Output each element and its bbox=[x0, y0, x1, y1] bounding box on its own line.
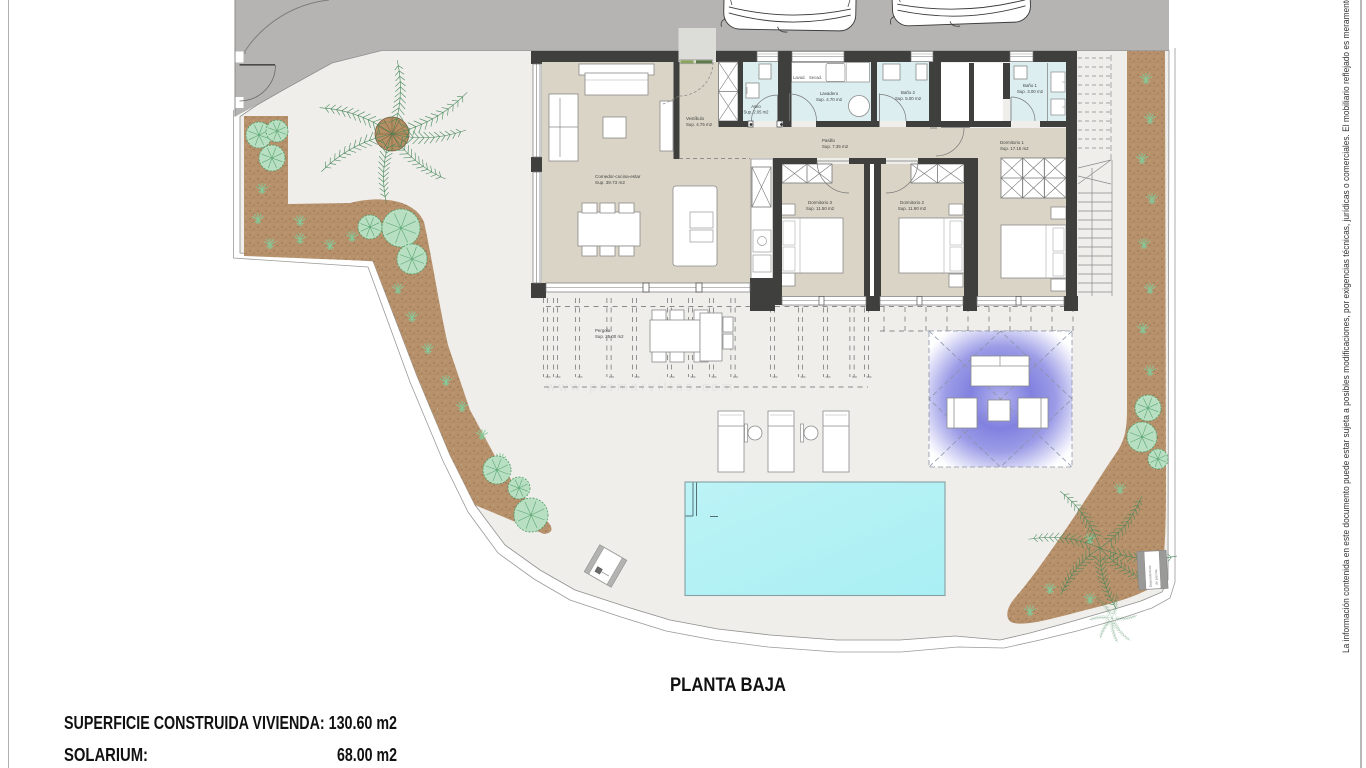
svg-text:Sup. 39.73 m2: Sup. 39.73 m2 bbox=[595, 180, 625, 185]
svg-text:Dormitorio 2: Dormitorio 2 bbox=[900, 200, 924, 205]
svg-text:www.promarvillas.com: www.promarvillas.com bbox=[545, 379, 735, 394]
svg-text:Baño 1: Baño 1 bbox=[1023, 83, 1037, 88]
svg-text:Dormitorio 3: Dormitorio 3 bbox=[808, 200, 832, 205]
svg-text:Aseo: Aseo bbox=[751, 104, 761, 109]
svg-text:PLANTA BAJA: PLANTA BAJA bbox=[670, 674, 786, 696]
svg-text:SUPERFICIE CONSTRUIDA VIVIENDA: SUPERFICIE CONSTRUIDA VIVIENDA: 130.60 m… bbox=[64, 713, 397, 733]
svg-text:Sup. 5.00 m2: Sup. 5.00 m2 bbox=[895, 96, 922, 101]
svg-text:La información contenida en es: La información contenida en este documen… bbox=[1341, 0, 1351, 653]
svg-text:Comedor-cocina-estar: Comedor-cocina-estar bbox=[595, 174, 641, 179]
svg-text:68.00 m2: 68.00 m2 bbox=[337, 745, 397, 765]
svg-text:Lavad.: Lavad. bbox=[793, 75, 806, 80]
svg-text:SOLARIUM:: SOLARIUM: bbox=[64, 745, 148, 765]
svg-text:de piscina: de piscina bbox=[1154, 569, 1159, 585]
svg-text:Dormitorio 1: Dormitorio 1 bbox=[1000, 140, 1024, 145]
svg-text:Sup. 2.05 m2: Sup. 2.05 m2 bbox=[744, 110, 770, 115]
svg-text:Sup. 7.35 m2: Sup. 7.35 m2 bbox=[822, 144, 849, 149]
svg-text:Baño 2: Baño 2 bbox=[901, 90, 915, 95]
svg-text:Sup. 25.00 m2: Sup. 25.00 m2 bbox=[595, 334, 624, 339]
svg-text:Pasillo: Pasillo bbox=[822, 138, 835, 143]
svg-text:Sup. 3.00 m2: Sup. 3.00 m2 bbox=[1017, 89, 1044, 94]
svg-text:Pergola: Pergola bbox=[595, 328, 611, 333]
svg-text:Sup. 4.75 m2: Sup. 4.75 m2 bbox=[686, 122, 713, 127]
svg-text:Sup. 4.70 m2: Sup. 4.70 m2 bbox=[816, 97, 843, 102]
svg-text:Sup. 17.15 m2: Sup. 17.15 m2 bbox=[1000, 146, 1029, 151]
svg-text:Lavadero: Lavadero bbox=[820, 91, 839, 96]
svg-text:Vestíbulo: Vestíbulo bbox=[686, 116, 705, 121]
svg-text:Sup. 11.90 m2: Sup. 11.90 m2 bbox=[898, 206, 927, 211]
svg-text:Sup. 11.50 m2: Sup. 11.50 m2 bbox=[806, 206, 835, 211]
svg-text:Secad.: Secad. bbox=[809, 75, 822, 80]
